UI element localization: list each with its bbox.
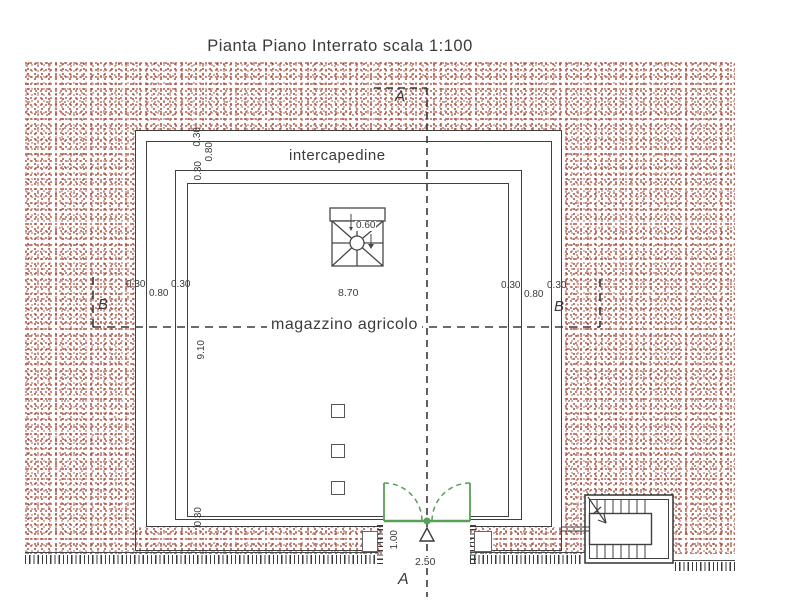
section-marker-a-bottom: A [398, 572, 409, 588]
dim-wall-inner-topleft: 0.30 [194, 161, 204, 180]
excavation-serration-left [25, 555, 378, 564]
dim-stair-well: 0.60 [355, 221, 376, 231]
dim-room-width: 8.70 [338, 288, 358, 299]
dim-wall-outer-topleft: 0.30 [193, 127, 203, 146]
dim-wall-inner-right: 0.30 [501, 281, 520, 291]
dim-wall-outer-left: 0.30 [126, 280, 145, 290]
inner-wall-inner-line [187, 183, 509, 517]
excavation-serration-mid [470, 555, 583, 564]
pillar [331, 481, 345, 495]
excavation-edge-line-right [673, 560, 735, 561]
door-jamb-block-left [362, 531, 378, 552]
pillar [331, 444, 345, 458]
pillar [331, 404, 345, 418]
dim-door-depth: 1.00 [390, 530, 400, 549]
dim-wall-outer-right: 0.30 [547, 281, 566, 291]
dim-wall-inner-left: 0.30 [171, 280, 190, 290]
excavation-serration-right [675, 562, 735, 571]
section-marker-b-right: B [554, 299, 564, 314]
cavity-label: intercapedine [289, 148, 386, 163]
dim-room-depth: 9.10 [197, 340, 207, 359]
excavation-edge-line-mid [470, 552, 585, 553]
excavation-edge-line-left [25, 552, 378, 553]
dim-cavity-gap-right: 0.80 [524, 290, 543, 300]
dim-cavity-gap-topleft: 0.80 [205, 142, 215, 161]
section-marker-b-left: B [98, 297, 108, 312]
dim-cavity-gap-left: 0.80 [149, 289, 168, 299]
drawing-title: Pianta Piano Interrato scala 1:100 [190, 38, 490, 55]
dim-door-width: 2.50 [413, 557, 437, 568]
floor-plan-drawing: Pianta Piano Interrato scala 1:100 inter… [0, 0, 800, 600]
door-jamb-block-right [474, 531, 492, 552]
room-label: magazzino agricolo [267, 317, 422, 333]
section-marker-a-top: A [395, 89, 405, 104]
dim-wall-bottom: 0.30 [194, 507, 204, 526]
